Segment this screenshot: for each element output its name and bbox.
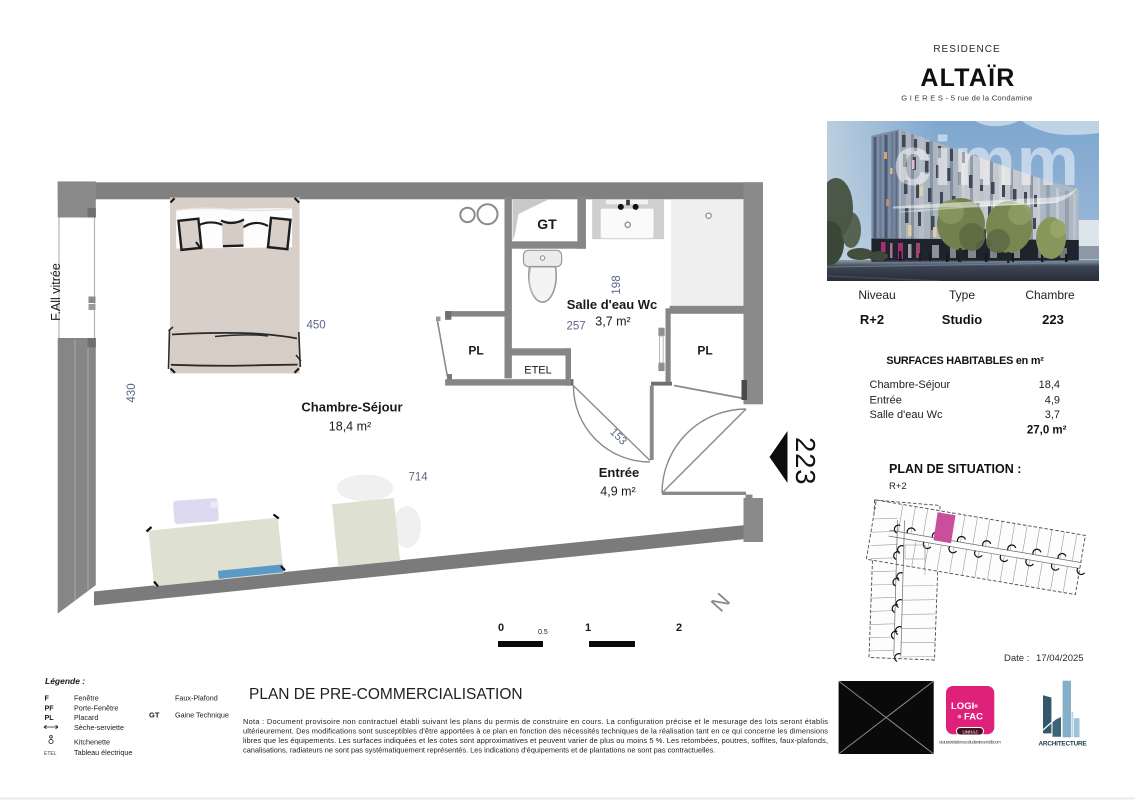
svg-text:223: 223	[1042, 312, 1064, 327]
svg-text:ARCHITECTURE: ARCHITECTURE	[1038, 741, 1087, 748]
svg-text:F: F	[45, 694, 50, 703]
svg-text:PF: PF	[45, 703, 55, 712]
svg-text:Légende :: Légende :	[45, 676, 85, 686]
svg-text:Entrée: Entrée	[870, 395, 902, 407]
svg-text:17/04/2025: 17/04/2025	[1036, 653, 1084, 664]
svg-text:Sèche-serviette: Sèche-serviette	[74, 723, 124, 732]
svg-text:Chambre-Séjour: Chambre-Séjour	[870, 379, 951, 391]
svg-text:Studio: Studio	[942, 312, 982, 327]
svg-text:cimm: cimm	[893, 122, 1080, 200]
svg-text:FAC: FAC	[964, 712, 983, 723]
svg-text:223: 223	[790, 437, 821, 485]
svg-text:ALTAÏR: ALTAÏR	[920, 64, 1015, 92]
svg-text:Kitchenette: Kitchenette	[74, 738, 110, 747]
svg-text:canalisations, radiateurs ne s: canalisations, radiateurs ne sont pas sy…	[243, 746, 715, 755]
svg-text:Tableau électrique: Tableau électrique	[74, 748, 132, 757]
svg-text:GT: GT	[537, 216, 557, 232]
svg-text:Nota : Document provisoire non: Nota : Document provisoire non contractu…	[243, 717, 828, 726]
svg-text:153: 153	[607, 426, 628, 447]
svg-text:Porte-Fenêtre: Porte-Fenêtre	[74, 703, 118, 712]
svg-text:Niveau: Niveau	[858, 288, 895, 302]
svg-text:198: 198	[611, 275, 623, 294]
svg-text:Gaine Technique: Gaine Technique	[175, 711, 229, 720]
svg-text:Chambre: Chambre	[1025, 288, 1075, 302]
svg-text:F.All vitrée: F.All vitrée	[49, 263, 63, 321]
svg-text:430: 430	[126, 383, 138, 402]
svg-text:18,4: 18,4	[1039, 379, 1060, 391]
svg-text:Salle d'eau Wc: Salle d'eau Wc	[567, 297, 658, 312]
svg-text:et aussi résidences étudiantes: et aussi résidences étudiantes en téléco…	[939, 740, 1001, 746]
svg-text:ETEL: ETEL	[524, 365, 552, 377]
svg-text:2: 2	[676, 622, 682, 634]
svg-text:450: 450	[307, 320, 326, 332]
svg-text:LOGI: LOGI	[951, 701, 974, 712]
svg-text:ultérieurement. Des modificati: ultérieurement. Des modifications sont s…	[243, 727, 828, 736]
svg-text:Salle d'eau Wc: Salle d'eau Wc	[870, 409, 944, 421]
svg-text:Entrée: Entrée	[599, 465, 639, 480]
svg-text:PL: PL	[45, 713, 55, 722]
svg-text:PL: PL	[468, 344, 483, 358]
svg-text:714: 714	[409, 472, 429, 484]
svg-text:18,4 m²: 18,4 m²	[329, 420, 371, 434]
svg-text:Chambre-Séjour: Chambre-Séjour	[301, 400, 402, 415]
svg-text:0: 0	[498, 622, 504, 634]
svg-text:R+2: R+2	[860, 312, 884, 327]
svg-text:Fenêtre: Fenêtre	[74, 694, 99, 703]
svg-text:UNHAJ: UNHAJ	[962, 729, 977, 734]
svg-text:3,7: 3,7	[1045, 409, 1060, 421]
svg-text:1: 1	[585, 622, 591, 634]
svg-text:Placard: Placard	[74, 713, 98, 722]
svg-text:GT: GT	[149, 711, 160, 720]
svg-text:G I E R E S - 5 rue de la Cond: G I E R E S - 5 rue de la Condamine	[901, 94, 1033, 103]
svg-text:Type: Type	[949, 288, 975, 302]
svg-text:4,9: 4,9	[1045, 395, 1060, 407]
svg-text:4,9 m²: 4,9 m²	[600, 485, 635, 499]
svg-text:Date :: Date :	[1004, 653, 1029, 664]
svg-text:SURFACES HABITABLES en m²: SURFACES HABITABLES en m²	[886, 355, 1044, 367]
svg-text:27,0 m²: 27,0 m²	[1027, 425, 1067, 437]
svg-text:3,7 m²: 3,7 m²	[595, 315, 630, 329]
svg-text:Faux-Plafond: Faux-Plafond	[175, 694, 218, 703]
svg-text:N: N	[706, 588, 735, 617]
svg-text:R+2: R+2	[889, 481, 907, 492]
svg-text:0.5: 0.5	[538, 629, 548, 636]
svg-text:257: 257	[567, 321, 586, 333]
svg-text:PLAN DE SITUATION :: PLAN DE SITUATION :	[889, 462, 1021, 476]
svg-text:ETEL: ETEL	[44, 751, 57, 757]
svg-text:PL: PL	[697, 344, 712, 358]
svg-text:libres que les équipements. Le: libres que les équipements. Les surfaces…	[243, 736, 828, 745]
svg-text:PLAN DE PRE-COMMERCIALISATION: PLAN DE PRE-COMMERCIALISATION	[249, 686, 523, 703]
svg-text:RESIDENCE: RESIDENCE	[933, 44, 1000, 55]
